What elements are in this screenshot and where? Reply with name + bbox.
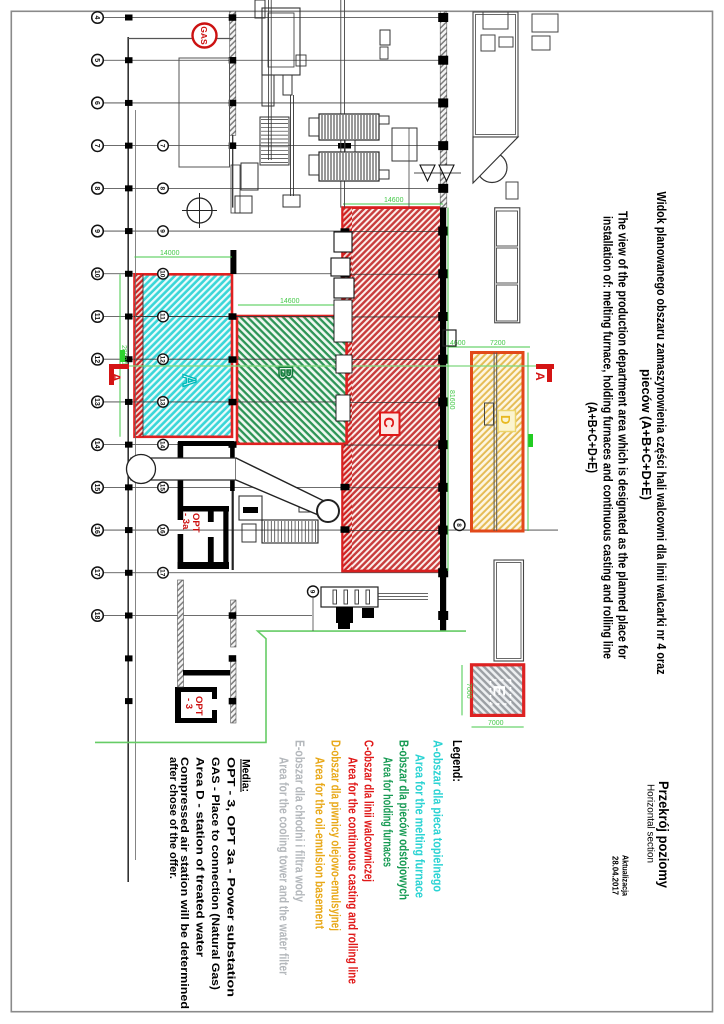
svg-text:6: 6 [93, 101, 100, 105]
svg-text:- 3: - 3 [183, 698, 194, 709]
svg-text:81600: 81600 [448, 390, 455, 410]
svg-text:installation of: melting furna: installation of: melting furnace, holdin… [601, 216, 615, 659]
svg-text:OPT - 3, OPT 3a - Power substa: OPT - 3, OPT 3a - Power substation [225, 757, 237, 997]
svg-text:4: 4 [93, 16, 100, 20]
svg-text:D-obszar dla piwnicy olejowo-e: D-obszar dla piwnicy olejowo-emulsyjnej [329, 740, 343, 931]
svg-text:15: 15 [93, 483, 100, 491]
svg-text:8: 8 [455, 523, 462, 527]
svg-text:Area for holding furnaces: Area for holding furnaces [381, 757, 395, 867]
svg-text:D: D [498, 415, 513, 424]
svg-text:10: 10 [93, 270, 100, 278]
svg-text:after chose of the offer.: after chose of the offer. [167, 757, 179, 879]
svg-text:E: E [490, 685, 509, 696]
svg-text:11: 11 [93, 313, 100, 321]
svg-text:Area for the cooling tower and: Area for the cooling tower and the water… [277, 757, 291, 975]
svg-text:28.04.2017: 28.04.2017 [611, 856, 620, 896]
svg-text:12: 12 [158, 356, 165, 364]
svg-text:Media:: Media: [240, 759, 252, 792]
svg-text:Area for the melting furnace: Area for the melting furnace [413, 754, 427, 898]
svg-text:pieców (A+B+C+D+E): pieców (A+B+C+D+E) [639, 369, 654, 500]
svg-text:Widok planowanego obszaru zama: Widok planowanego obszaru zamaszynowieni… [654, 192, 669, 675]
svg-text:7000: 7000 [465, 683, 472, 699]
svg-text:The view of the production dep: The view of the production department ar… [616, 211, 630, 659]
svg-text:16: 16 [158, 526, 165, 534]
svg-text:13: 13 [93, 398, 100, 406]
svg-text:7200: 7200 [490, 340, 506, 347]
svg-text:12: 12 [93, 355, 100, 363]
svg-text:14600: 14600 [280, 298, 300, 305]
svg-text:Legend:: Legend: [450, 740, 465, 782]
svg-text:7: 7 [93, 144, 100, 148]
svg-text:14: 14 [158, 441, 165, 449]
svg-text:Horizontal section: Horizontal section [645, 784, 656, 863]
svg-text:C: C [380, 417, 397, 428]
svg-text:9: 9 [158, 229, 165, 233]
svg-text:15: 15 [158, 484, 165, 492]
svg-text:GAS - Place to connection (Nat: GAS - Place to connection (Natural Gas) [209, 757, 221, 990]
svg-text:5: 5 [93, 58, 100, 62]
svg-text:A: A [533, 372, 547, 381]
svg-text:A: A [109, 373, 123, 382]
svg-text:16: 16 [93, 526, 100, 534]
svg-text:A-obszar dla pieca topielnego: A-obszar dla pieca topielnego [431, 740, 445, 892]
svg-text:11: 11 [158, 313, 165, 320]
svg-text:8: 8 [93, 186, 100, 190]
svg-text:E-obszar dla chłodni i filtra: E-obszar dla chłodni i filtra wody [293, 740, 307, 902]
svg-text:14600: 14600 [384, 197, 404, 204]
svg-text:17: 17 [158, 569, 165, 577]
svg-text:- 3a: - 3a [180, 513, 191, 530]
svg-text:C-obszar dla linii walcownicze: C-obszar dla linii walcowniczej [362, 740, 376, 882]
svg-text:Area for the oil-emulsion base: Area for the oil-emulsion basement [313, 757, 327, 930]
svg-text:A: A [179, 374, 199, 387]
svg-text:18: 18 [93, 612, 100, 620]
svg-text:14000: 14000 [160, 250, 180, 257]
svg-text:B-obszar dla pieców odstojowyc: B-obszar dla pieców odstojowych [397, 740, 411, 900]
svg-text:17: 17 [93, 569, 100, 577]
svg-text:(A+B+C+D+E): (A+B+C+D+E) [585, 402, 599, 473]
svg-text:9: 9 [93, 229, 100, 233]
svg-text:13: 13 [158, 398, 165, 406]
svg-text:10: 10 [158, 270, 165, 278]
svg-text:Area for the continuous castin: Area for the continuous casting and roll… [346, 757, 360, 984]
svg-text:Przekrój poziomy: Przekrój poziomy [656, 781, 672, 888]
svg-text:GAS: GAS [199, 26, 209, 45]
svg-text:Area D - station of treated wa: Area D - station of treated water [194, 757, 206, 958]
svg-text:8: 8 [158, 187, 165, 191]
svg-text:9: 9 [308, 590, 315, 594]
svg-text:14: 14 [93, 441, 100, 449]
svg-text:B: B [274, 366, 295, 380]
svg-text:7000: 7000 [488, 720, 504, 727]
svg-text:7: 7 [158, 144, 165, 148]
svg-text:Aktualizacja: Aktualizacja [621, 855, 630, 896]
